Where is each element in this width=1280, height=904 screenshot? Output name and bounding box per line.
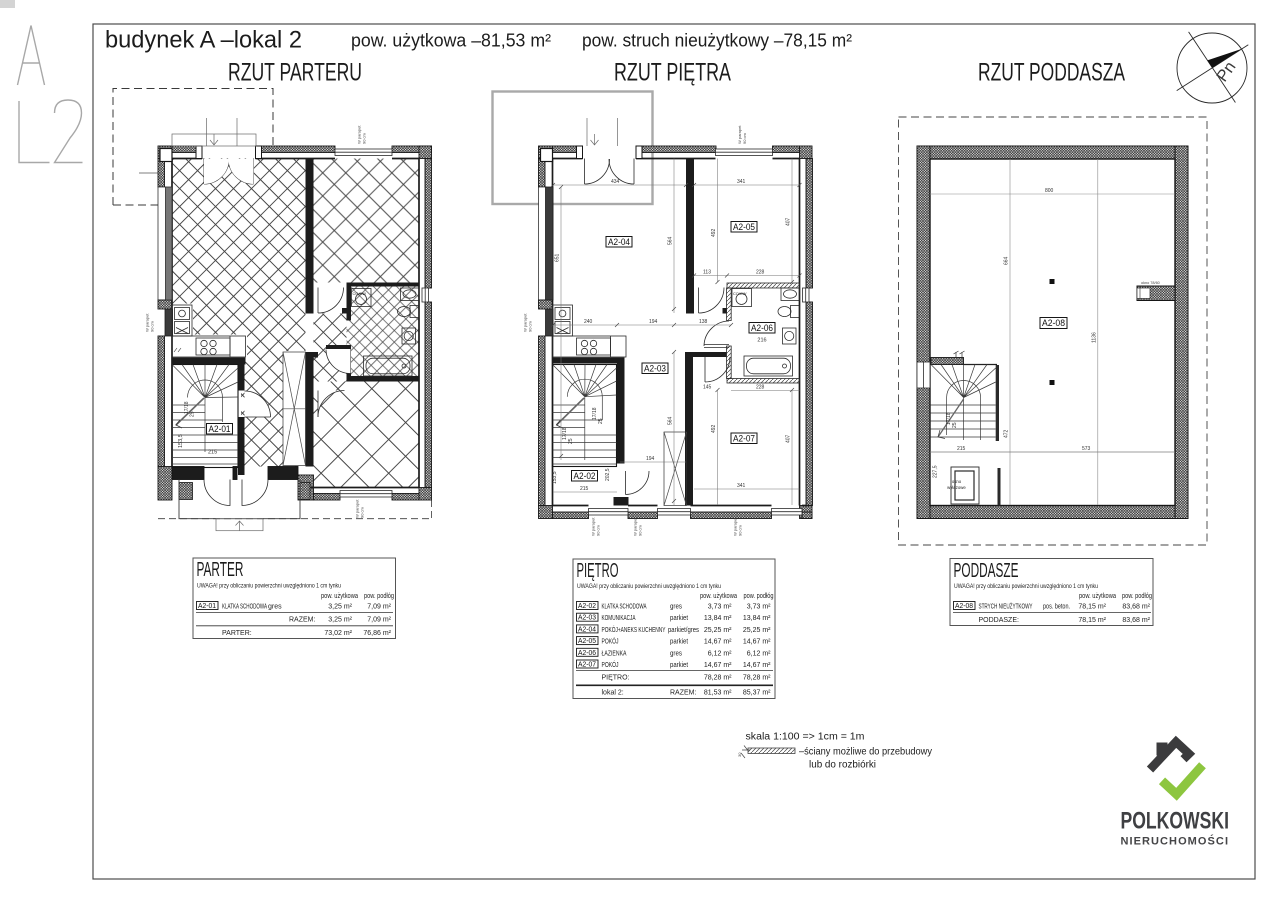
svg-text:lokal 2:: lokal 2: <box>602 690 624 697</box>
svg-text:573: 573 <box>1082 446 1091 452</box>
svg-text:A2-03: A2-03 <box>578 615 596 622</box>
svg-text:492: 492 <box>711 228 717 237</box>
svg-text:17/18: 17/18 <box>592 407 598 420</box>
svg-text:90 cm: 90 cm <box>150 320 155 332</box>
svg-text:parkiet/gres: parkiet/gres <box>668 627 699 634</box>
svg-text:7,09 m²: 7,09 m² <box>367 604 391 611</box>
svg-text:215: 215 <box>580 486 589 492</box>
svg-text:3,25 m²: 3,25 m² <box>328 617 352 624</box>
svg-text:NIERUCHOMOŚCI: NIERUCHOMOŚCI <box>1121 835 1229 848</box>
svg-text:lub do rozbiórki: lub do rozbiórki <box>809 760 876 771</box>
svg-text:STRYCH NIEUŻYTKOWY: STRYCH NIEUŻYTKOWY <box>979 602 1033 611</box>
svg-text:1136: 1136 <box>1092 332 1098 343</box>
svg-text:UWAGA! przy obliczaniu powierz: UWAGA! przy obliczaniu powierzchni uwzgl… <box>954 584 1098 590</box>
svg-text:A2-07: A2-07 <box>733 434 755 445</box>
svg-text:25,25 m²: 25,25 m² <box>743 627 771 634</box>
svg-text:pow. użytkowa: pow. użytkowa <box>321 593 358 600</box>
svg-text:341: 341 <box>737 179 746 185</box>
svg-text:25: 25 <box>952 422 958 428</box>
svg-text:pos. beton.: pos. beton. <box>1043 604 1070 611</box>
svg-text:138: 138 <box>699 319 708 325</box>
svg-text:202,5: 202,5 <box>605 468 611 481</box>
svg-text:14,67 m²: 14,67 m² <box>704 662 732 669</box>
svg-text:341: 341 <box>737 483 746 489</box>
svg-text:194: 194 <box>646 456 655 462</box>
svg-text:A2-05: A2-05 <box>578 638 596 645</box>
svg-text:pow. użytkowa –81,53 m²: pow. użytkowa –81,53 m² <box>351 31 551 51</box>
svg-text:skala 1:100 => 1cm = 1m: skala 1:100 => 1cm = 1m <box>746 732 865 743</box>
svg-text:KLATKA SCHODOWA: KLATKA SCHODOWA <box>602 604 647 611</box>
svg-text:76,86 m²: 76,86 m² <box>363 630 391 637</box>
svg-text:POKÓJ+ANEKS KUCHENNY: POKÓJ+ANEKS KUCHENNY <box>602 625 666 634</box>
svg-text:A2-04: A2-04 <box>608 237 630 248</box>
svg-text:CO/CW: CO/CW <box>353 291 367 296</box>
svg-text:215: 215 <box>957 446 966 452</box>
svg-text:30: 30 <box>737 752 742 757</box>
svg-text:90 cm: 90 cm <box>596 524 601 536</box>
svg-text:gres: gres <box>268 604 282 611</box>
svg-text:KLATKA SCHODOWA: KLATKA SCHODOWA <box>222 604 267 611</box>
svg-text:PARTER: PARTER <box>197 559 244 581</box>
svg-text:RZUT PARTERU: RZUT PARTERU <box>228 59 362 87</box>
svg-text:13,84 m²: 13,84 m² <box>743 615 771 622</box>
svg-text:budynek A –lokal 2: budynek A –lokal 2 <box>105 27 302 54</box>
svg-text:78,28 m²: 78,28 m² <box>704 675 732 682</box>
svg-text:14,67 m²: 14,67 m² <box>743 639 771 646</box>
svg-text:6,12 m²: 6,12 m² <box>747 650 771 657</box>
svg-text:POKÓJ: POKÓJ <box>602 637 619 646</box>
svg-text:–ściany możliwe do przebudowy: –ściany możliwe do przebudowy <box>799 747 932 758</box>
svg-text:83,68 m²: 83,68 m² <box>1122 604 1150 611</box>
svg-text:90 cm: 90 cm <box>738 524 743 536</box>
svg-text:216: 216 <box>757 338 766 344</box>
svg-text:800: 800 <box>1045 188 1054 194</box>
svg-text:472: 472 <box>1004 429 1010 438</box>
svg-text:407: 407 <box>786 217 792 226</box>
svg-text:90 cm: 90 cm <box>742 132 747 144</box>
svg-text:A2-06: A2-06 <box>578 650 596 657</box>
svg-text:153,5: 153,5 <box>178 434 184 448</box>
svg-text:CO/CW: CO/CW <box>733 291 747 296</box>
svg-text:POKÓJ: POKÓJ <box>602 660 619 669</box>
svg-text:A2-01: A2-01 <box>209 424 231 435</box>
svg-text:A2-08: A2-08 <box>955 603 973 610</box>
svg-text:25,25 m²: 25,25 m² <box>704 627 732 634</box>
svg-text:pow. podłóg: pow. podłóg <box>364 593 394 600</box>
svg-text:664: 664 <box>1004 256 1010 265</box>
svg-text:85,37 m²: 85,37 m² <box>743 690 771 697</box>
svg-text:A2-04: A2-04 <box>578 626 596 633</box>
svg-text:240: 240 <box>584 319 593 325</box>
svg-text:3,73 m²: 3,73 m² <box>708 604 732 611</box>
svg-text:pow. struch nieużytkowy –78,15: pow. struch nieużytkowy –78,15 m² <box>582 31 852 51</box>
svg-text:A2-08: A2-08 <box>1042 318 1065 329</box>
svg-text:25: 25 <box>568 438 574 444</box>
svg-text:6,12 m²: 6,12 m² <box>708 650 732 657</box>
svg-text:A2-03: A2-03 <box>644 364 666 375</box>
svg-text:PIĘTRO:: PIĘTRO: <box>602 675 630 682</box>
svg-text:14,67 m²: 14,67 m² <box>743 662 771 669</box>
svg-text:RZUT PODDASZA: RZUT PODDASZA <box>978 59 1125 87</box>
svg-text:407: 407 <box>786 434 792 443</box>
svg-text:UWAGA! przy obliczaniu powierz: UWAGA! przy obliczaniu powierzchni uwzgl… <box>577 584 721 590</box>
svg-text:parkiet: parkiet <box>670 639 688 646</box>
svg-text:78,28 m²: 78,28 m² <box>743 675 771 682</box>
svg-text:parkiet: parkiet <box>670 615 688 622</box>
svg-text:A2-06: A2-06 <box>751 323 773 334</box>
svg-text:90 cm: 90 cm <box>362 132 367 144</box>
svg-text:RZUT PIĘTRA: RZUT PIĘTRA <box>614 59 731 87</box>
svg-text:gres: gres <box>670 650 682 657</box>
svg-text:A2-02: A2-02 <box>578 603 596 610</box>
svg-text:13,84 m²: 13,84 m² <box>704 615 732 622</box>
svg-text:gres: gres <box>670 604 682 611</box>
svg-text:UWAGA! przy obliczaniu powierz: UWAGA! przy obliczaniu powierzchni uwzgl… <box>197 584 341 590</box>
svg-text:25: 25 <box>190 411 196 417</box>
svg-text:194: 194 <box>649 319 658 325</box>
svg-text:okno 78/60: okno 78/60 <box>1141 281 1160 285</box>
svg-text:ŁAZIENKA: ŁAZIENKA <box>602 650 627 657</box>
svg-text:78,15 m²: 78,15 m² <box>1078 617 1106 624</box>
svg-text:A2-01: A2-01 <box>198 601 216 610</box>
svg-text:wyłazowe: wyłazowe <box>947 485 966 490</box>
svg-text:153,5: 153,5 <box>552 471 558 484</box>
svg-text:25: 25 <box>598 418 604 424</box>
svg-text:83,68 m²: 83,68 m² <box>1122 617 1150 624</box>
svg-text:3,25 m²: 3,25 m² <box>328 604 352 611</box>
svg-text:A2-05: A2-05 <box>733 222 755 233</box>
svg-text:pow. użytkowa: pow. użytkowa <box>1079 593 1116 600</box>
svg-text:PIĘTRO: PIĘTRO <box>577 560 619 582</box>
svg-text:228: 228 <box>756 385 765 391</box>
svg-text:145: 145 <box>703 385 712 391</box>
svg-text:RAZEM:: RAZEM: <box>670 690 697 697</box>
svg-text:492: 492 <box>711 424 717 433</box>
svg-text:pow. podłóg: pow. podłóg <box>1122 593 1152 600</box>
svg-text:227,5: 227,5 <box>933 465 939 478</box>
svg-text:78,15 m²: 78,15 m² <box>1078 604 1106 611</box>
svg-text:3,73 m²: 3,73 m² <box>747 604 771 611</box>
svg-text:81,53 m²: 81,53 m² <box>704 690 732 697</box>
svg-text:KOMUNIKACJA: KOMUNIKACJA <box>602 615 636 622</box>
svg-text:A2-02: A2-02 <box>574 471 596 482</box>
svg-text:73,02 m²: 73,02 m² <box>324 630 352 637</box>
svg-text:pow. podłóg: pow. podłóg <box>744 593 774 600</box>
svg-text:PODDASZE: PODDASZE <box>954 560 1019 582</box>
svg-text:PARTER:: PARTER: <box>222 630 252 637</box>
svg-text:215: 215 <box>208 450 217 456</box>
svg-text:14,67 m²: 14,67 m² <box>704 639 732 646</box>
svg-text:pow. użytkowa: pow. użytkowa <box>700 593 737 600</box>
svg-text:7,09 m²: 7,09 m² <box>367 617 391 624</box>
svg-text:17/18: 17/18 <box>562 427 568 440</box>
svg-text:564: 564 <box>668 236 674 245</box>
svg-text:228: 228 <box>756 270 765 276</box>
svg-text:PODDASZE:: PODDASZE: <box>979 617 1020 624</box>
svg-text:90 cm: 90 cm <box>528 320 533 332</box>
svg-text:434: 434 <box>611 179 620 185</box>
svg-text:POLKOWSKI: POLKOWSKI <box>1121 808 1230 835</box>
svg-text:RAZEM:: RAZEM: <box>289 617 316 624</box>
svg-text:parkiet: parkiet <box>670 662 688 669</box>
svg-text:113: 113 <box>703 270 711 276</box>
svg-text:90 cm: 90 cm <box>360 506 365 518</box>
svg-text:90 cm: 90 cm <box>638 524 643 536</box>
svg-text:564: 564 <box>668 416 674 425</box>
svg-text:A2-07: A2-07 <box>578 662 596 669</box>
svg-text:okno: okno <box>952 479 962 484</box>
svg-text:651: 651 <box>555 253 561 262</box>
